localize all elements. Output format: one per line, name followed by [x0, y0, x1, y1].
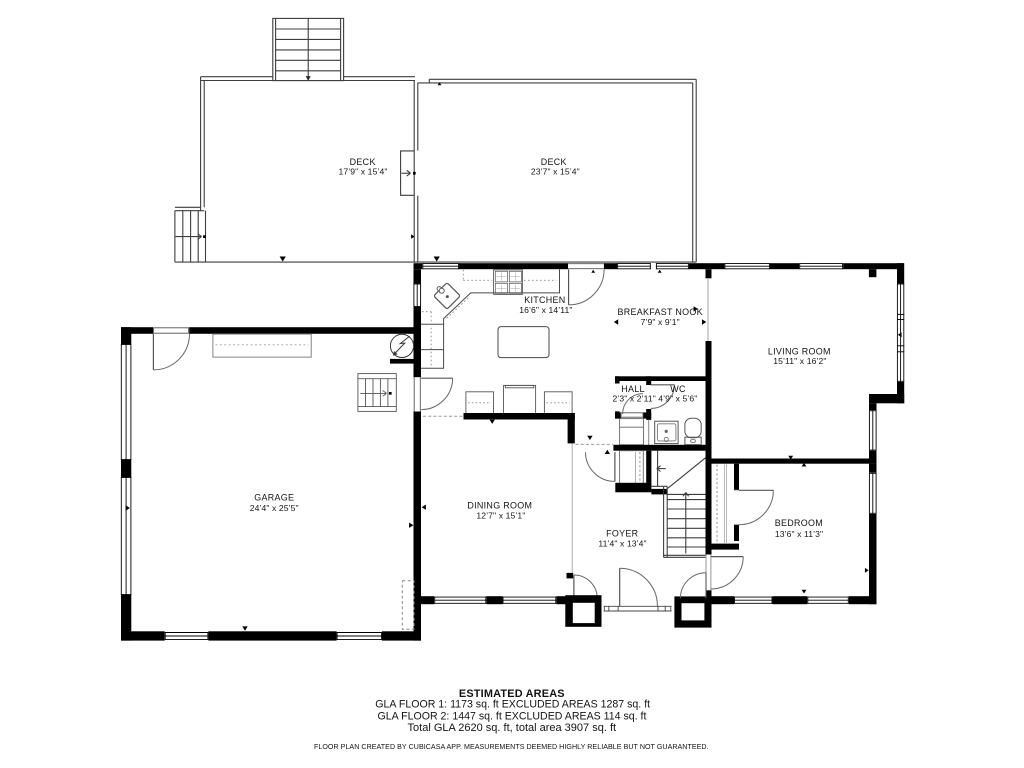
- svg-text:LIVING ROOM: LIVING ROOM: [768, 346, 831, 356]
- svg-text:GLA FLOOR 1: 1173 sq. ft EXCLU: GLA FLOOR 1: 1173 sq. ft EXCLUDED AREAS …: [375, 699, 650, 711]
- svg-text:BREAKFAST NOOK: BREAKFAST NOOK: [617, 307, 703, 317]
- svg-text:4’9" x 5’6": 4’9" x 5’6": [658, 393, 697, 403]
- svg-text:17’9" x 15’4": 17’9" x 15’4": [339, 167, 388, 177]
- svg-text:11’4" x 13’4": 11’4" x 13’4": [598, 539, 646, 549]
- svg-text:7’9" x 9’1": 7’9" x 9’1": [641, 317, 680, 327]
- svg-text:Total GLA 2620 sq. ft, total a: Total GLA 2620 sq. ft, total area 3907 s…: [408, 722, 617, 734]
- svg-text:GARAGE: GARAGE: [254, 492, 294, 502]
- svg-text:FLOOR PLAN CREATED BY CUBICASA: FLOOR PLAN CREATED BY CUBICASA APP. MEAS…: [314, 743, 709, 751]
- svg-text:GLA FLOOR 2: 1447 sq. ft EXCLU: GLA FLOOR 2: 1447 sq. ft EXCLUDED AREAS …: [378, 710, 647, 722]
- svg-text:16’6" x 14’11": 16’6" x 14’11": [519, 305, 572, 315]
- svg-text:24’4" x 25’5": 24’4" x 25’5": [250, 503, 299, 513]
- svg-text:13’6" x 11’3": 13’6" x 11’3": [775, 529, 823, 539]
- svg-text:FOYER: FOYER: [606, 528, 639, 538]
- svg-text:DECK: DECK: [541, 157, 567, 167]
- svg-text:KITCHEN: KITCHEN: [524, 295, 565, 305]
- svg-text:15’11" x 16’2": 15’11" x 16’2": [773, 356, 826, 366]
- svg-text:DECK: DECK: [350, 157, 376, 167]
- svg-text:23’7" x 15’4": 23’7" x 15’4": [531, 167, 580, 177]
- svg-text:BEDROOM: BEDROOM: [775, 518, 823, 528]
- svg-text:2’3" x 2’11": 2’3" x 2’11": [612, 393, 655, 403]
- svg-text:12’7" x 15’1": 12’7" x 15’1": [476, 511, 525, 521]
- svg-text:DINING ROOM: DINING ROOM: [467, 501, 532, 511]
